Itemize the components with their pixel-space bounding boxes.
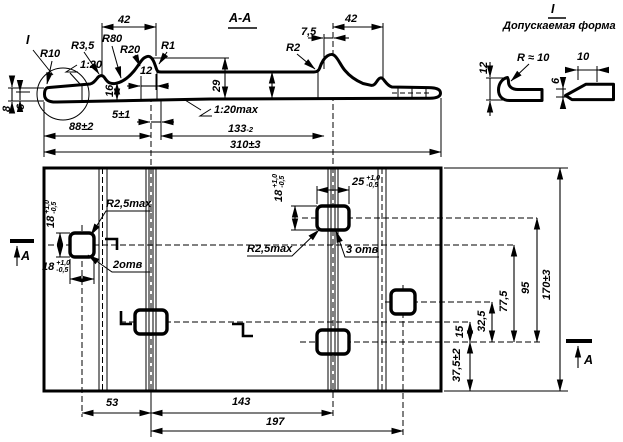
dim-16: 16 — [104, 85, 116, 97]
dim-88: 88±2 — [69, 121, 93, 133]
drawing-sheet: А-А I R10 R3,5 R80 R20 R1 R2 1:20 1:20ma… — [0, 0, 623, 442]
hole-small-left — [70, 233, 94, 257]
dim-42-left: 42 — [118, 14, 130, 26]
dim-53: 53 — [106, 397, 118, 409]
plate-outline — [44, 168, 441, 391]
dim-hole-big-height: 18 +1,0-0,5 — [272, 174, 286, 202]
hole-big-left — [135, 310, 167, 334]
radius-r20: R20 — [120, 44, 140, 56]
dim-5: 5±1 — [112, 109, 130, 121]
cut-arrow-label-left: А — [21, 250, 30, 262]
plan-corner-marks — [105, 239, 253, 336]
slope-bottom-label: 1:20max — [214, 104, 258, 116]
radius-r3-5: R3,5 — [71, 40, 94, 52]
dim-133: 133-2 — [228, 123, 253, 135]
dim-143: 143 — [232, 396, 250, 408]
hole-big-top — [317, 206, 349, 230]
dim-hole-big-width: 25 +1,0-0,5 — [352, 175, 380, 189]
dim-7-5: 7,5 — [301, 26, 316, 38]
dim-32-5: 32,5 — [476, 311, 488, 332]
radius-r2: R2 — [286, 42, 300, 54]
detail-dim-6: 6 — [550, 78, 562, 84]
detail-tapered-end — [566, 84, 614, 99]
dim-42-right: 42 — [345, 13, 357, 25]
detail-title: Допускаемая форма — [503, 20, 616, 32]
radius-r1: R1 — [161, 40, 175, 52]
detail-curled-end — [499, 78, 543, 101]
detail-callout-ref: I — [26, 34, 29, 46]
hole-radius-left-label: R2,5max — [106, 198, 151, 210]
hole-count-big: 3 отв — [346, 244, 378, 256]
detail-ref: I — [551, 3, 554, 15]
dim-77-5: 77,5 — [498, 291, 510, 312]
dim-37-5: 37,5±2 — [451, 348, 463, 382]
dim-170: 170±3 — [541, 269, 553, 300]
detail-radius-r10: R ≈ 10 — [517, 52, 549, 64]
hole-big-bottom — [317, 330, 349, 354]
cut-arrow-label-right: А — [584, 354, 593, 366]
section-title: А-А — [229, 12, 251, 24]
dim-29: 29 — [211, 80, 223, 92]
slope-top-label: 1:20 — [80, 59, 102, 71]
detail-dim-10: 10 — [577, 51, 589, 63]
dim-hole-small-width: 18 +1,0-0,5 — [42, 260, 70, 274]
dim-6: 6 — [15, 104, 27, 110]
leaders — [33, 18, 566, 272]
dim-197: 197 — [266, 416, 284, 428]
dim-310: 310±3 — [230, 139, 261, 151]
hole-radius-mid-label: R2,5max — [247, 243, 292, 255]
dim-hole-small-height: 18 +1,0-0,5 — [44, 200, 58, 228]
radius-r10: R10 — [40, 48, 60, 60]
dim-12: 12 — [140, 65, 152, 77]
slope-symbol-bottom — [200, 109, 212, 116]
dim-8: 8 — [1, 106, 13, 112]
detail-dim-12: 12 — [478, 62, 490, 74]
hole-count-small: 2отв — [113, 259, 142, 271]
dim-95: 95 — [520, 282, 532, 294]
dim-15: 15 — [454, 326, 466, 338]
hole-small-right — [391, 290, 415, 314]
